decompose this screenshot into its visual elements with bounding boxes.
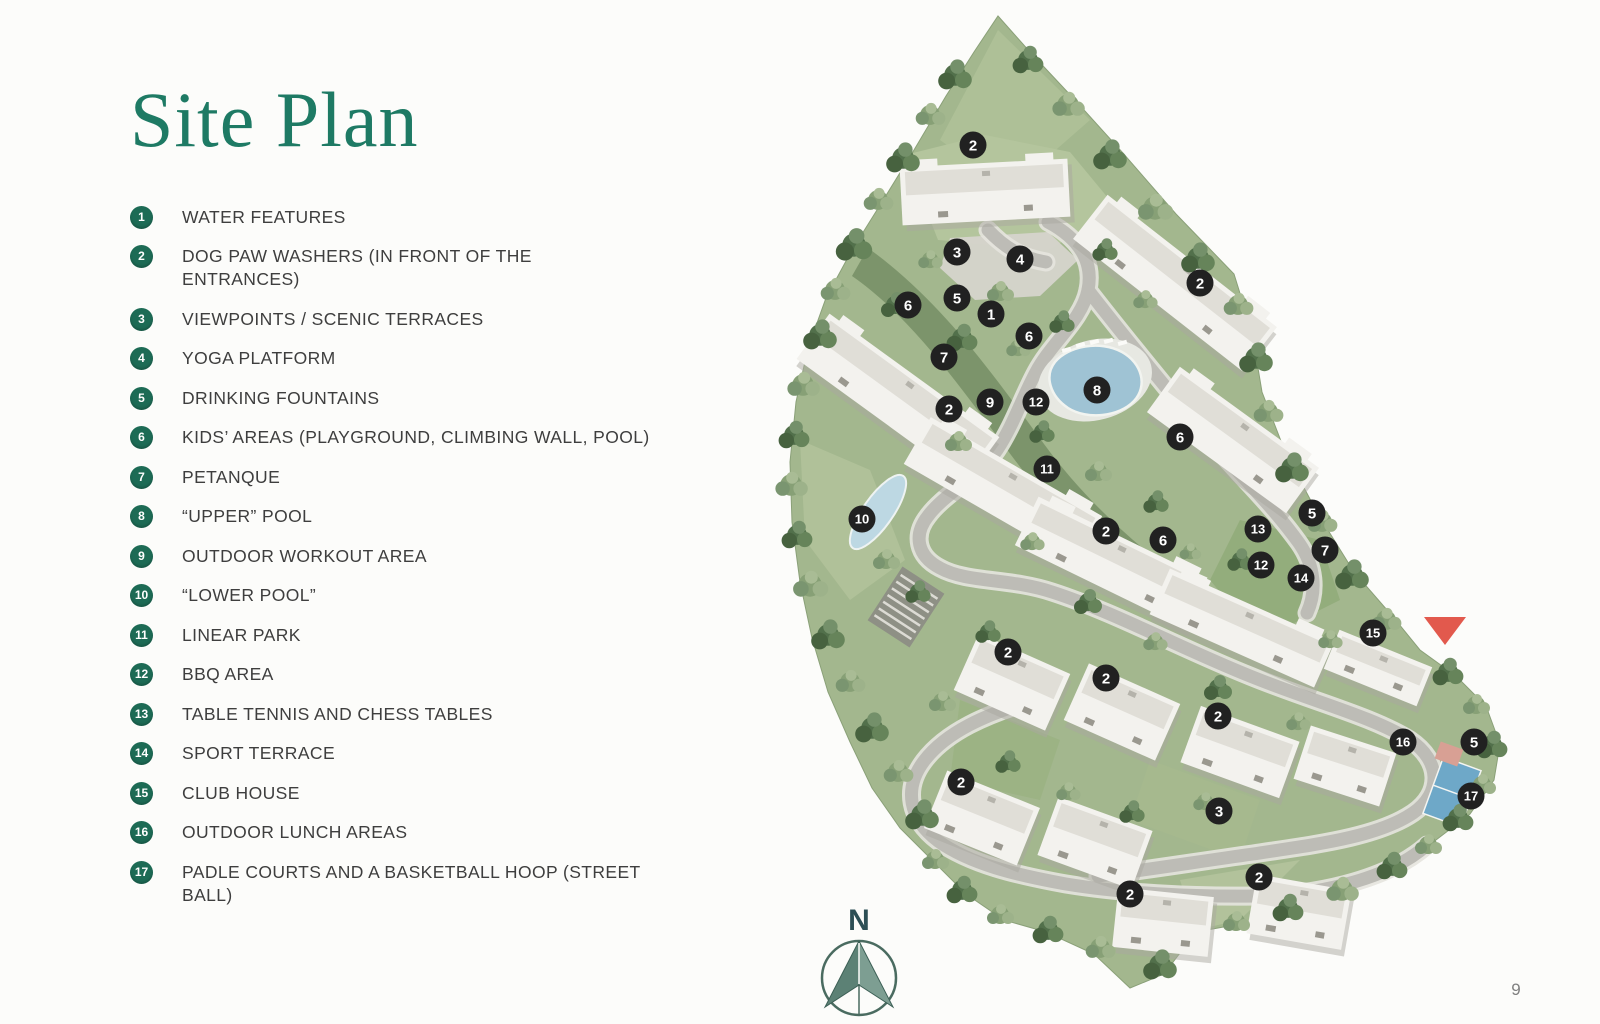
legend-number-badge: 1 — [130, 206, 153, 229]
legend-item-label: CLUB HOUSE — [182, 782, 300, 805]
entrance-layer — [1424, 617, 1466, 645]
map-marker-5: 5 — [1461, 729, 1488, 756]
svg-text:14: 14 — [1294, 571, 1309, 586]
svg-text:1: 1 — [987, 306, 995, 323]
legend-number-badge: 13 — [130, 703, 153, 726]
compass: N — [822, 904, 896, 1015]
legend-item-label: LINEAR PARK — [182, 624, 301, 647]
legend-item-label: KIDS’ AREAS (PLAYGROUND, CLIMBING WALL, … — [182, 426, 650, 449]
entrance-marker-triangle — [1424, 617, 1466, 645]
svg-text:13: 13 — [1251, 522, 1265, 537]
map-marker-6: 6 — [1150, 527, 1177, 554]
svg-text:6: 6 — [1025, 328, 1033, 345]
map-marker-5: 5 — [1299, 500, 1326, 527]
map-marker-7: 7 — [1312, 537, 1339, 564]
legend-number-badge: 4 — [130, 347, 153, 370]
svg-text:2: 2 — [1102, 670, 1110, 687]
legend-item: 9OUTDOOR WORKOUT AREA — [130, 545, 730, 568]
map-marker-2: 2 — [1187, 270, 1214, 297]
legend-number-badge: 12 — [130, 663, 153, 686]
building — [899, 151, 1074, 231]
svg-text:4: 4 — [1016, 251, 1025, 268]
legend-item-label: SPORT TERRACE — [182, 742, 335, 765]
legend-number-badge: 7 — [130, 466, 153, 489]
svg-text:2: 2 — [957, 774, 965, 791]
legend-panel: Site Plan 1WATER FEATURES2DOG PAW WASHER… — [130, 80, 730, 923]
legend-item: 13TABLE TENNIS AND CHESS TABLES — [130, 703, 730, 726]
map-marker-13: 13 — [1245, 516, 1272, 543]
legend-item-label: VIEWPOINTS / SCENIC TERRACES — [182, 308, 484, 331]
svg-text:2: 2 — [1126, 886, 1134, 903]
map-marker-10: 10 — [849, 506, 876, 533]
map-marker-8: 8 — [1084, 377, 1111, 404]
svg-text:7: 7 — [1321, 542, 1329, 559]
map-marker-2: 2 — [960, 132, 987, 159]
legend-item: 16OUTDOOR LUNCH AREAS — [130, 821, 730, 844]
map-marker-3: 3 — [944, 239, 971, 266]
svg-text:2: 2 — [1255, 869, 1263, 886]
map-marker-3: 3 — [1206, 798, 1233, 825]
map-marker-2: 2 — [948, 769, 975, 796]
legend-item: 6KIDS’ AREAS (PLAYGROUND, CLIMBING WALL,… — [130, 426, 730, 449]
svg-text:9: 9 — [986, 394, 994, 411]
legend-number-badge: 9 — [130, 545, 153, 568]
legend-item: 2DOG PAW WASHERS (IN FRONT OF THE ENTRAN… — [130, 245, 730, 291]
map-marker-16: 16 — [1390, 729, 1417, 756]
svg-text:12: 12 — [1254, 558, 1268, 573]
map-marker-2: 2 — [1093, 665, 1120, 692]
map-marker-17: 17 — [1458, 783, 1485, 810]
legend-item-label: TABLE TENNIS AND CHESS TABLES — [182, 703, 493, 726]
page-title: Site Plan — [130, 80, 730, 160]
legend-number-badge: 14 — [130, 742, 153, 765]
legend-item-label: WATER FEATURES — [182, 206, 346, 229]
map-marker-2: 2 — [1205, 703, 1232, 730]
legend-number-badge: 8 — [130, 505, 153, 528]
svg-text:3: 3 — [953, 244, 961, 261]
legend-item-label: DOG PAW WASHERS (IN FRONT OF THE ENTRANC… — [182, 245, 652, 291]
svg-text:2: 2 — [945, 401, 953, 418]
map-marker-2: 2 — [936, 396, 963, 423]
compass-north-label: N — [848, 904, 870, 937]
legend-item-label: “LOWER POOL” — [182, 584, 316, 607]
legend-number-badge: 2 — [130, 245, 153, 268]
map-marker-1: 1 — [978, 301, 1005, 328]
legend-number-badge: 6 — [130, 426, 153, 449]
svg-text:2: 2 — [1196, 275, 1204, 292]
legend-item: 8“UPPER” POOL — [130, 505, 730, 528]
svg-text:2: 2 — [969, 137, 977, 154]
svg-text:6: 6 — [1159, 532, 1167, 549]
svg-text:3: 3 — [1215, 803, 1223, 820]
legend-item: 5DRINKING FOUNTAINS — [130, 387, 730, 410]
legend-number-badge: 11 — [130, 624, 153, 647]
map-marker-9: 9 — [977, 389, 1004, 416]
svg-text:5: 5 — [1308, 505, 1316, 522]
legend-item-label: OUTDOOR WORKOUT AREA — [182, 545, 427, 568]
svg-text:15: 15 — [1366, 626, 1380, 641]
svg-text:6: 6 — [904, 297, 912, 314]
legend-item: 7PETANQUE — [130, 466, 730, 489]
legend-item: 15CLUB HOUSE — [130, 782, 730, 805]
svg-text:5: 5 — [953, 290, 961, 307]
legend-number-badge: 10 — [130, 584, 153, 607]
map-marker-7: 7 — [931, 344, 958, 371]
map-marker-14: 14 — [1288, 565, 1315, 592]
map-marker-6: 6 — [1167, 424, 1194, 451]
legend-item: 3VIEWPOINTS / SCENIC TERRACES — [130, 308, 730, 331]
legend-item-label: “UPPER” POOL — [182, 505, 312, 528]
legend-item-label: BBQ AREA — [182, 663, 274, 686]
svg-text:2: 2 — [1102, 523, 1110, 540]
map-marker-5: 5 — [944, 285, 971, 312]
legend-item: 4YOGA PLATFORM — [130, 347, 730, 370]
compass-arrow-left — [825, 941, 859, 1007]
svg-text:10: 10 — [855, 512, 869, 527]
svg-text:5: 5 — [1470, 734, 1478, 751]
svg-text:8: 8 — [1093, 382, 1101, 399]
svg-text:7: 7 — [940, 349, 948, 366]
legend-item-label: PADLE COURTS AND A BASKETBALL HOOP (STRE… — [182, 861, 652, 907]
map-marker-2: 2 — [995, 639, 1022, 666]
svg-text:16: 16 — [1396, 735, 1410, 750]
svg-text:6: 6 — [1176, 429, 1184, 446]
compass-arrow-right — [859, 941, 893, 1007]
legend-item-label: YOGA PLATFORM — [182, 347, 336, 370]
svg-text:2: 2 — [1214, 708, 1222, 725]
legend-number-badge: 15 — [130, 782, 153, 805]
legend-item: 14SPORT TERRACE — [130, 742, 730, 765]
legend-item: 11LINEAR PARK — [130, 624, 730, 647]
map-marker-6: 6 — [895, 292, 922, 319]
map-marker-12: 12 — [1023, 389, 1050, 416]
legend-number-badge: 5 — [130, 387, 153, 410]
svg-text:12: 12 — [1029, 395, 1043, 410]
svg-text:17: 17 — [1464, 789, 1478, 804]
legend-number-badge: 3 — [130, 308, 153, 331]
svg-text:11: 11 — [1040, 462, 1054, 477]
legend-item-label: OUTDOOR LUNCH AREAS — [182, 821, 407, 844]
page-number: 9 — [1500, 980, 1532, 1000]
legend-item: 17PADLE COURTS AND A BASKETBALL HOOP (ST… — [130, 861, 730, 907]
legend-number-badge: 17 — [130, 861, 153, 884]
map-marker-2: 2 — [1117, 881, 1144, 908]
legend-item: 10“LOWER POOL” — [130, 584, 730, 607]
svg-text:2: 2 — [1004, 644, 1012, 661]
map-marker-2: 2 — [1246, 864, 1273, 891]
tree-clump — [886, 142, 920, 172]
legend-item: 1WATER FEATURES — [130, 206, 730, 229]
map-marker-2: 2 — [1093, 518, 1120, 545]
legend-item-label: PETANQUE — [182, 466, 280, 489]
map-marker-6: 6 — [1016, 323, 1043, 350]
legend-item: 12BBQ AREA — [130, 663, 730, 686]
map-marker-4: 4 — [1007, 246, 1034, 273]
legend-list: 1WATER FEATURES2DOG PAW WASHERS (IN FRON… — [130, 206, 730, 907]
legend-item-label: DRINKING FOUNTAINS — [182, 387, 379, 410]
map-marker-15: 15 — [1360, 620, 1387, 647]
legend-number-badge: 16 — [130, 821, 153, 844]
map-marker-12: 12 — [1248, 552, 1275, 579]
site-plan-page: N 23425616789122611510132671214152221652… — [0, 0, 1600, 1024]
map-marker-11: 11 — [1034, 456, 1061, 483]
